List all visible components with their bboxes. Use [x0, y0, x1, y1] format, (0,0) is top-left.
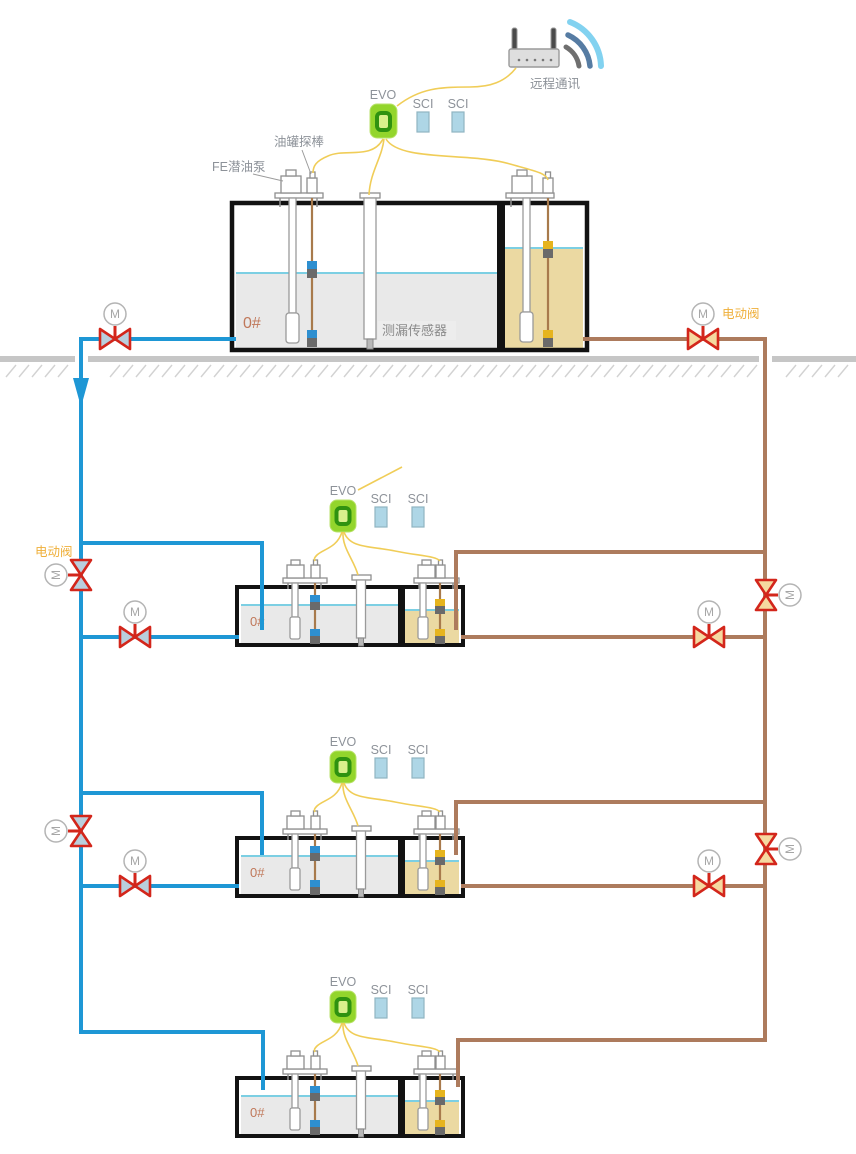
piping — [73, 339, 765, 1090]
svg-text:M: M — [704, 854, 714, 868]
ground-hatch-mark — [383, 365, 393, 377]
evo-label: EVO — [330, 975, 357, 989]
flange-plate — [275, 193, 323, 198]
probe-head — [543, 178, 553, 193]
ground-hatching — [6, 365, 848, 377]
probe-float — [307, 330, 317, 338]
ground-hatch-mark — [214, 365, 224, 377]
pump-motor-head — [512, 176, 532, 193]
svg-text:M: M — [783, 844, 797, 854]
svg-text:M: M — [783, 590, 797, 600]
ground-hatch-mark — [630, 365, 640, 377]
ground-hatch-mark — [513, 365, 523, 377]
ground-hatch-mark — [162, 365, 172, 377]
probe-head — [307, 178, 317, 193]
ground-hatch-mark — [500, 365, 510, 377]
ground-hatch-mark — [149, 365, 159, 377]
ground-hatch-mark — [331, 365, 341, 377]
svg-text:M: M — [49, 570, 63, 580]
motor-head: M — [124, 601, 146, 623]
pump-tube — [289, 198, 296, 313]
submersible-pump — [286, 313, 299, 343]
ground-hatch-mark — [344, 365, 354, 377]
ground-hatch-mark — [227, 365, 237, 377]
probe-float — [543, 330, 553, 338]
svg-text:M: M — [130, 854, 140, 868]
motor-head: M — [45, 564, 67, 586]
ground-hatch-mark — [175, 365, 185, 377]
tank-3-graphic — [237, 751, 463, 897]
ground-hatch-mark — [604, 365, 614, 377]
ground-hatch-mark — [786, 365, 796, 377]
motor-head: M — [45, 820, 67, 842]
ground-hatch-mark — [32, 365, 42, 377]
evo-label: EVO — [370, 88, 397, 102]
submersible-pump — [520, 312, 533, 342]
ground-hatch-mark — [370, 365, 380, 377]
ground-hatch-mark — [617, 365, 627, 377]
ground-hatch-mark — [747, 365, 757, 377]
ground-hatch-mark — [734, 365, 744, 377]
svg-text:M: M — [49, 826, 63, 836]
ground-hatch-mark — [422, 365, 432, 377]
probe-float — [543, 241, 553, 249]
tank-system-diagram: 远程通讯 — [0, 0, 856, 1154]
callout-leader — [253, 174, 283, 181]
tank-probe-label: 油罐探棒 — [274, 135, 325, 149]
ground-hatch-mark — [266, 365, 276, 377]
callout-leader — [302, 150, 311, 174]
tank-divider — [497, 205, 505, 348]
evo-label: EVO — [330, 735, 357, 749]
ground-hatch-mark — [721, 365, 731, 377]
pump-tube — [523, 198, 530, 312]
evo-screen — [377, 113, 390, 130]
ground-hatch-mark — [669, 365, 679, 377]
motor-head: M — [779, 838, 801, 860]
ground-hatch-mark — [578, 365, 588, 377]
sci-label: SCI — [371, 492, 392, 506]
ground-hatch-mark — [695, 365, 705, 377]
ground-hatch-mark — [253, 365, 263, 377]
tank-group-1: FE潜油泵 油罐探棒 测漏传感器 EVO SCI SCI 0# — [212, 88, 587, 350]
motor-head: M — [779, 584, 801, 606]
ground-hatch-mark — [240, 365, 250, 377]
sci-label: SCI — [371, 983, 392, 997]
sci-module — [452, 112, 464, 132]
ground-hatch-mark — [682, 365, 692, 377]
remote-comm-label: 远程通讯 — [530, 76, 581, 91]
ground-hatch-mark — [552, 365, 562, 377]
ground-hatch-mark — [409, 365, 419, 377]
ground-hatch-mark — [812, 365, 822, 377]
pipe-blue-branch — [81, 793, 262, 855]
ground-hatch-mark — [526, 365, 536, 377]
ground-hatch-mark — [539, 365, 549, 377]
fuel-grade-label: 0# — [250, 865, 265, 880]
ground-hatch-mark — [799, 365, 809, 377]
pipe-brown-branch — [456, 802, 765, 855]
tank-group-4: EVO SCI SCI 0# — [237, 975, 463, 1137]
pump-motor-head — [281, 176, 301, 193]
wifi-signal-icon — [566, 22, 601, 66]
tank-2-graphic — [237, 500, 463, 646]
ground-hatch-mark — [357, 365, 367, 377]
ground-hatch-mark — [487, 365, 497, 377]
ground-hatch-mark — [123, 365, 133, 377]
tank-4-graphic — [237, 991, 463, 1137]
ground-line — [0, 356, 856, 377]
ground-hatch-mark — [201, 365, 211, 377]
motor-head: M — [692, 303, 714, 325]
fuel-grade-label: 0# — [250, 1105, 265, 1120]
ground-hatch-mark — [292, 365, 302, 377]
ground-hatch-mark — [448, 365, 458, 377]
fuel-grade-label: 0# — [243, 315, 261, 332]
ground-hatch-mark — [591, 365, 601, 377]
ground-hatch-mark — [279, 365, 289, 377]
fe-pump-label: FE潜油泵 — [212, 160, 265, 174]
motor-head: M — [124, 850, 146, 872]
pipe-blue-main — [81, 339, 263, 1090]
diagram-stage: 远程通讯 — [0, 0, 856, 1154]
sci-label: SCI — [408, 743, 429, 757]
ground-hatch-mark — [461, 365, 471, 377]
sci-label: SCI — [448, 97, 469, 111]
ground-hatch-mark — [708, 365, 718, 377]
leak-tube-flange — [360, 193, 380, 198]
svg-text:M: M — [698, 307, 708, 321]
ground-hatch-mark — [643, 365, 653, 377]
ground-hatch-mark — [474, 365, 484, 377]
ground-hatch-mark — [19, 365, 29, 377]
sci-label: SCI — [413, 97, 434, 111]
ground-hatch-mark — [58, 365, 68, 377]
electric-valve-label: 电动阀 — [35, 545, 73, 559]
motor-head: M — [698, 601, 720, 623]
pipe-blue-branch — [81, 543, 262, 630]
motor-head: M — [698, 850, 720, 872]
sci-label: SCI — [371, 743, 392, 757]
probe-float — [307, 261, 317, 269]
svg-text:M: M — [110, 307, 120, 321]
sci-label: SCI — [408, 492, 429, 506]
ground-hatch-mark — [565, 365, 575, 377]
valves: M M 电动阀 M 电动阀 M M — [35, 303, 801, 896]
ground-hatch-mark — [825, 365, 835, 377]
flow-arrow — [73, 378, 89, 407]
ground-hatch-mark — [110, 365, 120, 377]
leak-sensor-tip — [367, 339, 373, 349]
ground-hatch-mark — [435, 365, 445, 377]
svg-text:M: M — [130, 605, 140, 619]
tank-group-3: EVO SCI SCI 0# — [237, 735, 463, 897]
pipe-brown-main — [458, 339, 765, 1087]
ground-hatch-mark — [136, 365, 146, 377]
ground-hatch-mark — [838, 365, 848, 377]
ground-hatch-mark — [305, 365, 315, 377]
electric-valve-label: 电动阀 — [722, 307, 760, 321]
ground-hatch-mark — [396, 365, 406, 377]
motor-head: M — [104, 303, 126, 325]
sci-label: SCI — [408, 983, 429, 997]
evo-label: EVO — [330, 484, 357, 498]
leak-sensor-tube — [364, 198, 376, 339]
ground-hatch-mark — [318, 365, 328, 377]
wifi-router — [509, 28, 559, 67]
ground-hatch-mark — [45, 365, 55, 377]
ground-hatch-mark — [656, 365, 666, 377]
flange-plate — [506, 193, 554, 198]
svg-text:M: M — [704, 605, 714, 619]
router-body — [509, 49, 559, 67]
uplink-wire-stub — [358, 467, 402, 490]
tank-group-2: EVO SCI SCI 0# — [237, 467, 463, 646]
ground-hatch-mark — [6, 365, 16, 377]
ground-hatch-mark — [188, 365, 198, 377]
leak-sensor-label: 测漏传感器 — [382, 323, 447, 338]
sci-module — [417, 112, 429, 132]
